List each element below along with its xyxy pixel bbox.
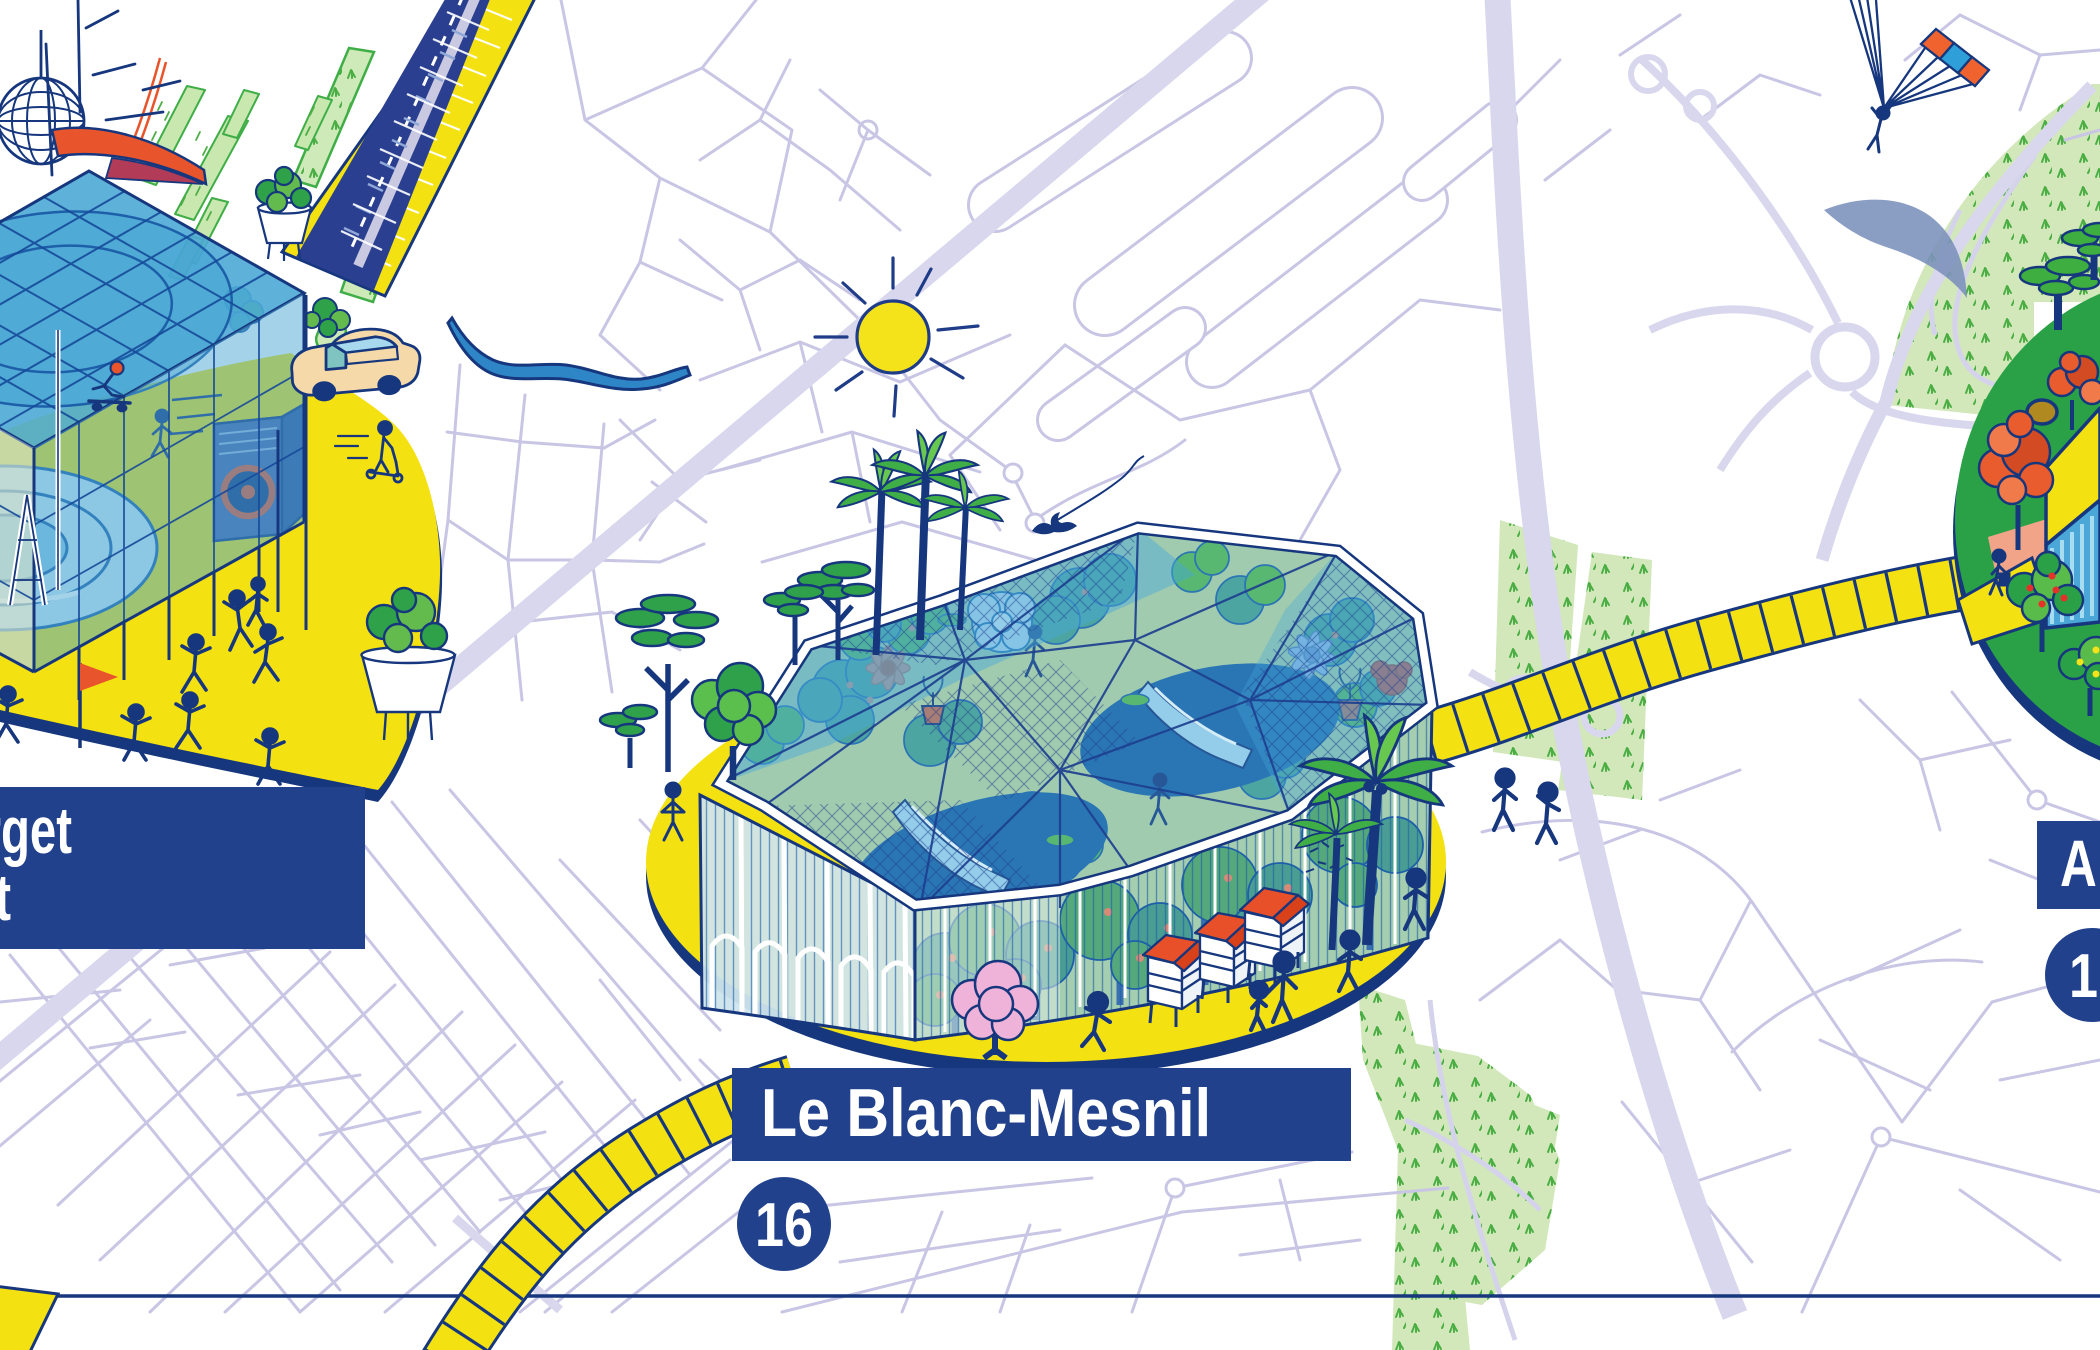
svg-text:Le Bourget: Le Bourget <box>0 793 72 867</box>
svg-text:16: 16 <box>755 1191 813 1260</box>
svg-text:Le Blanc-Mesnil: Le Blanc-Mesnil <box>761 1075 1211 1151</box>
svg-text:Aulnay: Aulnay <box>2060 826 2100 900</box>
svg-text:Aéroport: Aéroport <box>0 860 11 934</box>
svg-text:17: 17 <box>2069 942 2100 1011</box>
